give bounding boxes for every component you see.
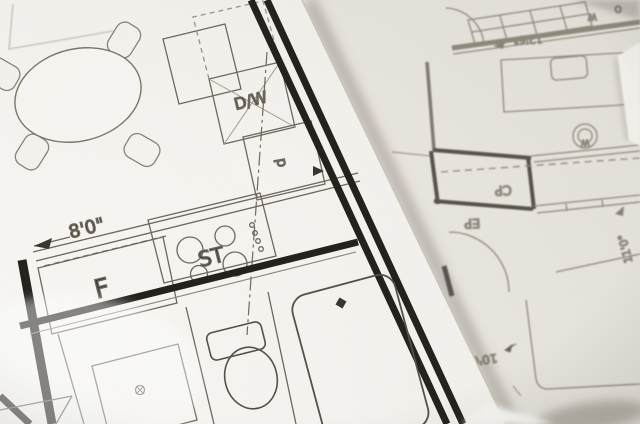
floor-plan-photo-canvas: 12'6" W O W CP EP bbox=[0, 0, 640, 424]
vignette-overlay bbox=[0, 0, 640, 424]
photo-of-floor-plans: 12'6" W O W CP EP bbox=[0, 0, 640, 424]
